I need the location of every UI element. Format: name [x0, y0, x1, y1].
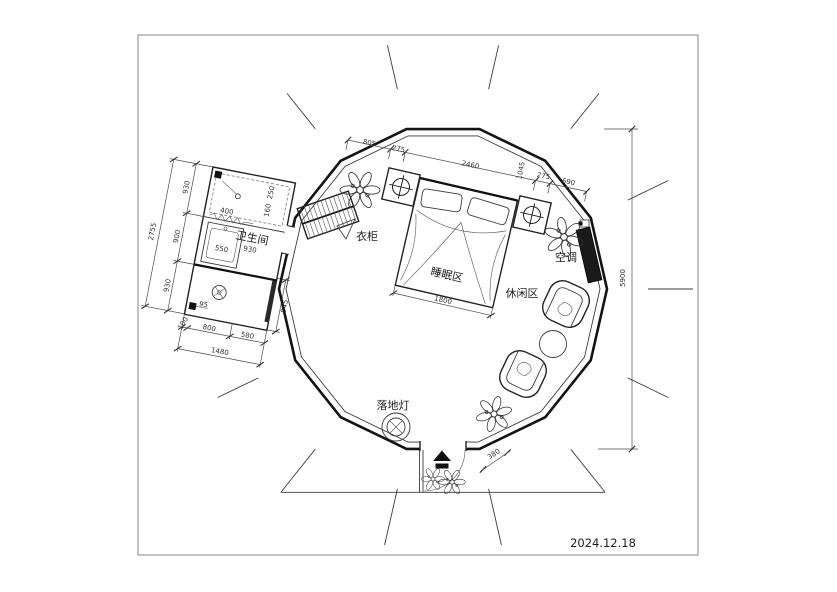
floor-drain — [211, 284, 227, 300]
bathroom-label: 卫生间 — [235, 228, 270, 248]
plant-icon — [340, 171, 380, 210]
dim-1045: 1045 — [515, 161, 527, 180]
blanket-folds — [400, 210, 507, 305]
plant-icon — [472, 392, 516, 435]
ac-label: 空调 — [555, 250, 577, 264]
floor-lamp-label: 落地灯 — [377, 399, 410, 412]
dim-2755: 2755 — [147, 222, 158, 241]
dim-275-a: 275 — [391, 144, 406, 155]
entry-plant-icon — [421, 468, 445, 491]
dim-95: 95 — [198, 300, 208, 310]
side-table — [540, 331, 567, 358]
dim-580: 580 — [240, 330, 255, 340]
sleeping-area-label: 睡眠区 — [429, 265, 464, 285]
dim-380: 380 — [486, 447, 502, 461]
nightstand-left — [382, 168, 420, 206]
pillow — [420, 188, 462, 212]
dim-930-top: 930 — [181, 180, 191, 195]
leisure-area-label: 休闲区 — [506, 286, 539, 300]
entry-arrow-icon — [433, 451, 451, 469]
wardrobe-door-flap — [337, 219, 355, 239]
dim-550: 550 — [214, 244, 229, 254]
shower-enclosure — [209, 173, 289, 226]
nightstand-right — [513, 196, 551, 234]
wardrobe-label: 衣柜 — [356, 229, 378, 243]
tent-wall-inner — [286, 136, 600, 442]
lamp-symbol — [387, 173, 416, 202]
dim-930-inner: 930 — [243, 244, 258, 254]
bathroom-doorway — [280, 225, 296, 255]
radiating-structure-lines — [218, 45, 693, 545]
pillow — [467, 197, 511, 226]
lamp-symbol — [518, 201, 547, 230]
dim-690: 690 — [561, 177, 576, 188]
dim-2460: 2460 — [461, 159, 480, 171]
entry-plant-icon — [439, 469, 466, 495]
dim-805: 805 — [362, 138, 377, 149]
dim-800: 800 — [202, 323, 217, 333]
lounge-chair-2 — [495, 346, 551, 402]
shower-valve — [235, 193, 241, 199]
floor-lamp — [382, 413, 410, 441]
shower-head — [214, 171, 222, 179]
date-label: 2024.12.18 — [570, 536, 636, 550]
dim-160: 160 — [263, 203, 273, 218]
floor-plan-page: 400 250 160 550 930 95 卫生间 930 900 930 2… — [0, 0, 837, 592]
tent-wall-outer — [279, 129, 607, 449]
dim-930-bottom: 930 — [162, 278, 172, 293]
dim-900: 900 — [172, 229, 182, 244]
bed: 睡眠区 1800 — [390, 177, 521, 319]
floor-plan-svg: 400 250 160 550 930 95 卫生间 930 900 930 2… — [0, 0, 837, 592]
threshold-strip — [264, 280, 276, 322]
dim-100: 100 — [176, 316, 190, 332]
dim-5900: 5900 — [619, 269, 627, 287]
dim-250: 250 — [266, 185, 276, 200]
lounge-chair-1 — [538, 276, 594, 332]
dim-275-b: 275 — [536, 171, 551, 182]
drawing-frame — [138, 35, 698, 555]
overall-height-dim — [598, 126, 638, 452]
